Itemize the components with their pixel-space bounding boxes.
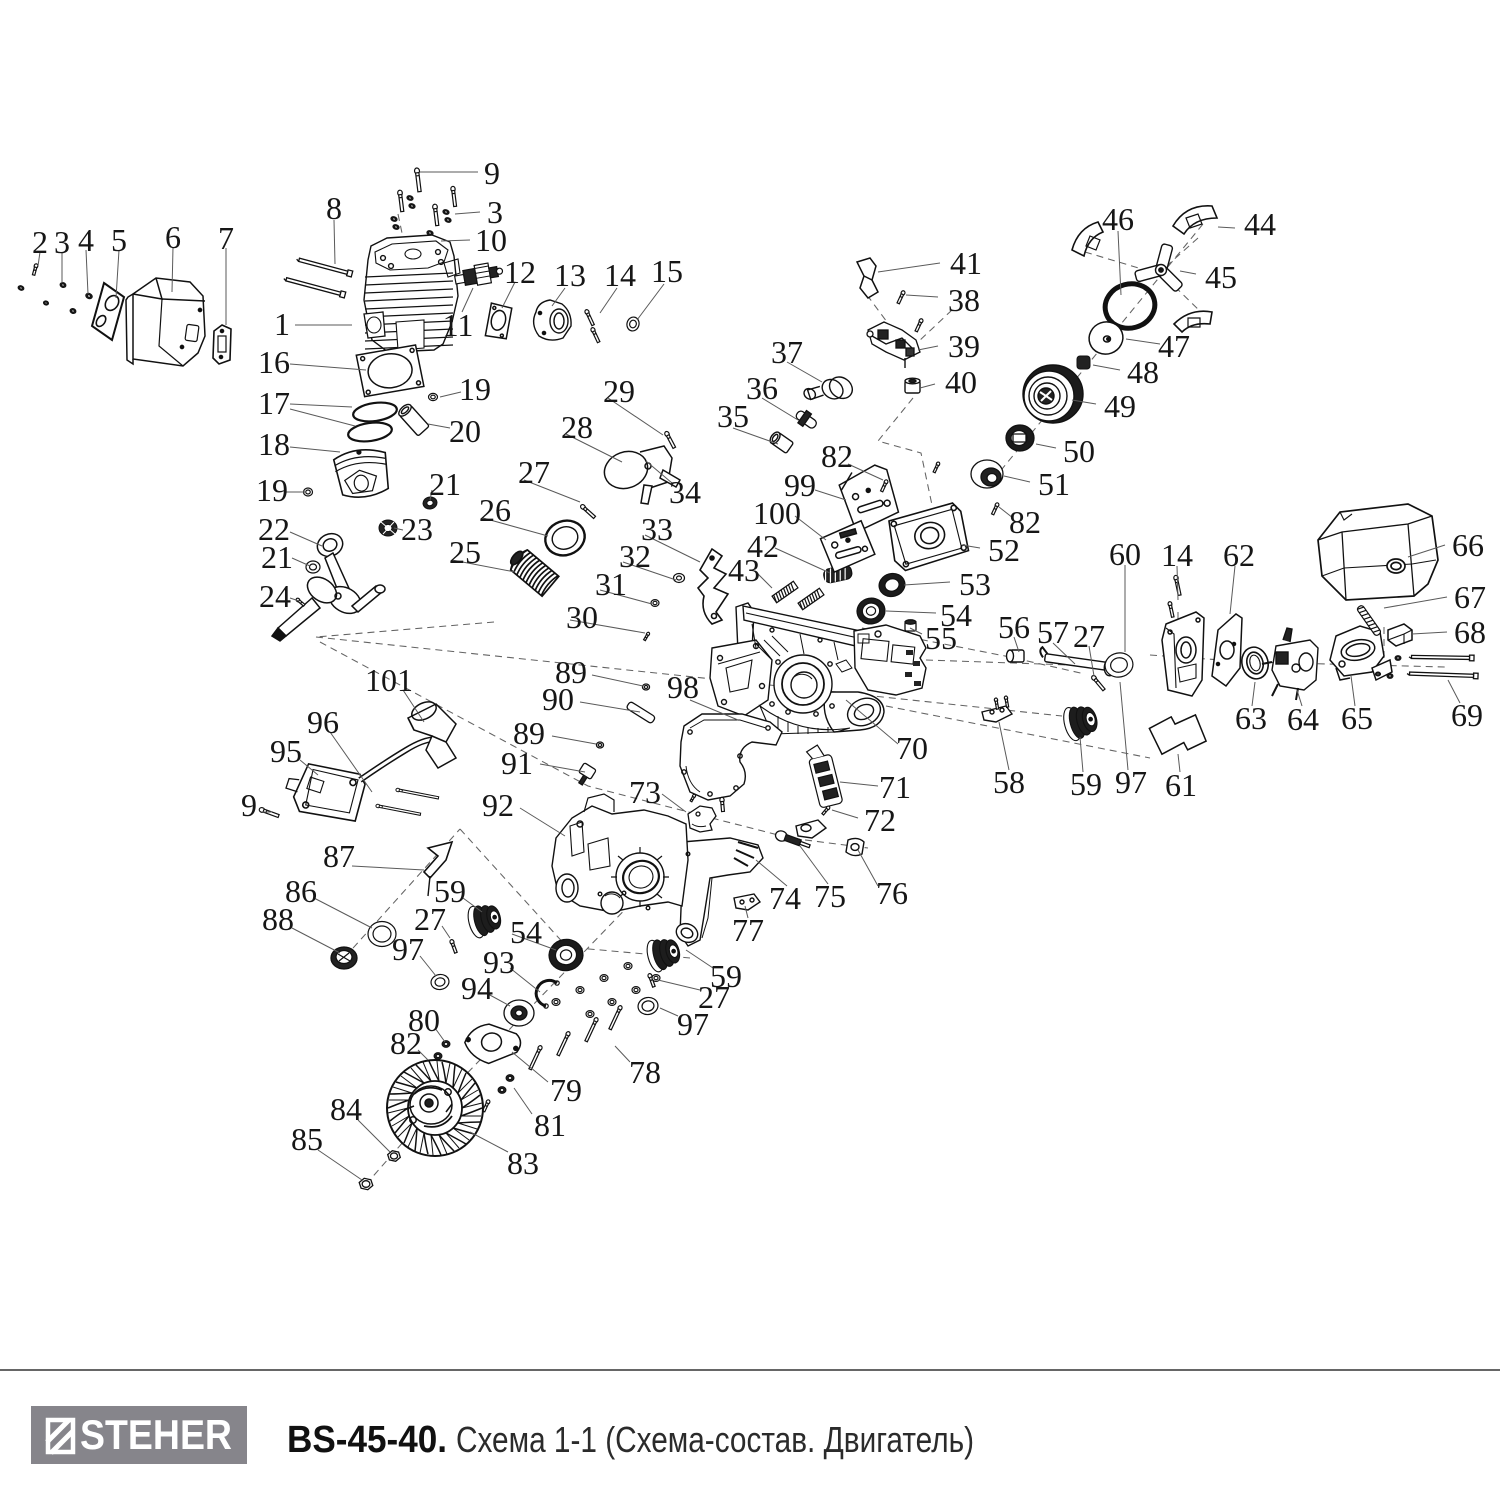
svg-text:9: 9 (241, 787, 257, 823)
svg-text:17: 17 (258, 385, 290, 421)
svg-text:33: 33 (641, 511, 673, 547)
svg-text:28: 28 (561, 409, 593, 445)
svg-text:7: 7 (218, 220, 234, 256)
svg-text:2: 2 (32, 224, 48, 260)
svg-text:41: 41 (950, 245, 982, 281)
svg-text:88: 88 (262, 901, 294, 937)
svg-text:5: 5 (111, 222, 127, 258)
svg-text:45: 45 (1205, 259, 1237, 295)
svg-text:37: 37 (771, 334, 803, 370)
svg-text:55: 55 (925, 620, 957, 656)
svg-text:14: 14 (604, 257, 636, 293)
svg-text:72: 72 (864, 802, 896, 838)
svg-text:11: 11 (443, 307, 474, 343)
svg-text:30: 30 (566, 599, 598, 635)
svg-text:61: 61 (1165, 767, 1197, 803)
svg-text:STEHER: STEHER (80, 1411, 232, 1458)
svg-text:85: 85 (291, 1121, 323, 1157)
svg-text:74: 74 (769, 880, 801, 916)
svg-text:56: 56 (998, 609, 1030, 645)
svg-text:71: 71 (879, 769, 911, 805)
svg-text:78: 78 (629, 1054, 661, 1090)
svg-text:81: 81 (534, 1107, 566, 1143)
svg-text:39: 39 (948, 328, 980, 364)
svg-text:91: 91 (501, 745, 533, 781)
svg-text:59: 59 (1070, 766, 1102, 802)
svg-text:60: 60 (1109, 536, 1141, 572)
svg-text:65: 65 (1341, 700, 1373, 736)
svg-text:66: 66 (1452, 527, 1484, 563)
svg-text:14: 14 (1161, 537, 1193, 573)
svg-text:29: 29 (603, 373, 635, 409)
svg-text:19: 19 (459, 371, 491, 407)
svg-text:16: 16 (258, 344, 290, 380)
svg-text:57: 57 (1037, 614, 1069, 650)
svg-text:25: 25 (449, 534, 481, 570)
svg-text:73: 73 (629, 774, 661, 810)
svg-text:95: 95 (270, 733, 302, 769)
svg-text:1: 1 (274, 306, 290, 342)
svg-text:49: 49 (1104, 388, 1136, 424)
svg-text:97: 97 (677, 1006, 709, 1042)
svg-text:27: 27 (518, 454, 550, 490)
svg-text:18: 18 (258, 426, 290, 462)
svg-text:20: 20 (449, 413, 481, 449)
svg-text:23: 23 (401, 511, 433, 547)
svg-text:4: 4 (78, 222, 94, 258)
svg-text:3: 3 (54, 224, 70, 260)
svg-text:76: 76 (876, 875, 908, 911)
svg-text:38: 38 (948, 282, 980, 318)
svg-text:15: 15 (651, 253, 683, 289)
svg-text:94: 94 (461, 970, 493, 1006)
svg-text:BS-45-40.: BS-45-40. (287, 1419, 447, 1461)
svg-text:36: 36 (746, 370, 778, 406)
svg-text:21: 21 (261, 539, 293, 575)
svg-text:63: 63 (1235, 700, 1267, 736)
svg-text:51: 51 (1038, 466, 1070, 502)
svg-text:82: 82 (821, 438, 853, 474)
svg-text:87: 87 (323, 838, 355, 874)
svg-text:12: 12 (504, 254, 536, 290)
svg-text:34: 34 (669, 474, 701, 510)
svg-text:101: 101 (365, 662, 413, 698)
svg-text:26: 26 (479, 492, 511, 528)
svg-text:40: 40 (945, 364, 977, 400)
svg-text:47: 47 (1158, 328, 1190, 364)
svg-text:48: 48 (1127, 354, 1159, 390)
svg-text:75: 75 (814, 878, 846, 914)
svg-text:67: 67 (1454, 579, 1486, 615)
svg-text:13: 13 (554, 257, 586, 293)
svg-text:98: 98 (667, 669, 699, 705)
svg-text:64: 64 (1287, 701, 1319, 737)
svg-text:58: 58 (993, 764, 1025, 800)
svg-text:19: 19 (256, 472, 288, 508)
svg-text:84: 84 (330, 1091, 362, 1127)
svg-text:69: 69 (1451, 697, 1483, 733)
svg-text:27: 27 (1073, 618, 1105, 654)
svg-text:44: 44 (1244, 206, 1276, 242)
svg-text:83: 83 (507, 1145, 539, 1181)
svg-text:92: 92 (482, 787, 514, 823)
svg-text:24: 24 (259, 578, 291, 614)
svg-text:6: 6 (165, 219, 181, 255)
svg-text:97: 97 (392, 931, 424, 967)
svg-text:79: 79 (550, 1072, 582, 1108)
svg-text:10: 10 (475, 222, 507, 258)
svg-text:43: 43 (728, 552, 760, 588)
svg-text:96: 96 (307, 704, 339, 740)
svg-text:52: 52 (988, 532, 1020, 568)
svg-text:9: 9 (484, 155, 500, 191)
svg-text:46: 46 (1102, 201, 1134, 237)
svg-text:90: 90 (542, 681, 574, 717)
svg-text:50: 50 (1063, 433, 1095, 469)
svg-text:70: 70 (896, 730, 928, 766)
svg-text:62: 62 (1223, 537, 1255, 573)
svg-text:100: 100 (753, 495, 801, 531)
svg-text:68: 68 (1454, 614, 1486, 650)
svg-text:82: 82 (390, 1025, 422, 1061)
svg-text:97: 97 (1115, 764, 1147, 800)
svg-text:8: 8 (326, 190, 342, 226)
svg-text:35: 35 (717, 398, 749, 434)
svg-text:Схема 1-1 (Схема-состав. Двига: Схема 1-1 (Схема-состав. Двигатель) (456, 1419, 974, 1460)
svg-text:77: 77 (732, 912, 764, 948)
svg-text:21: 21 (429, 466, 461, 502)
